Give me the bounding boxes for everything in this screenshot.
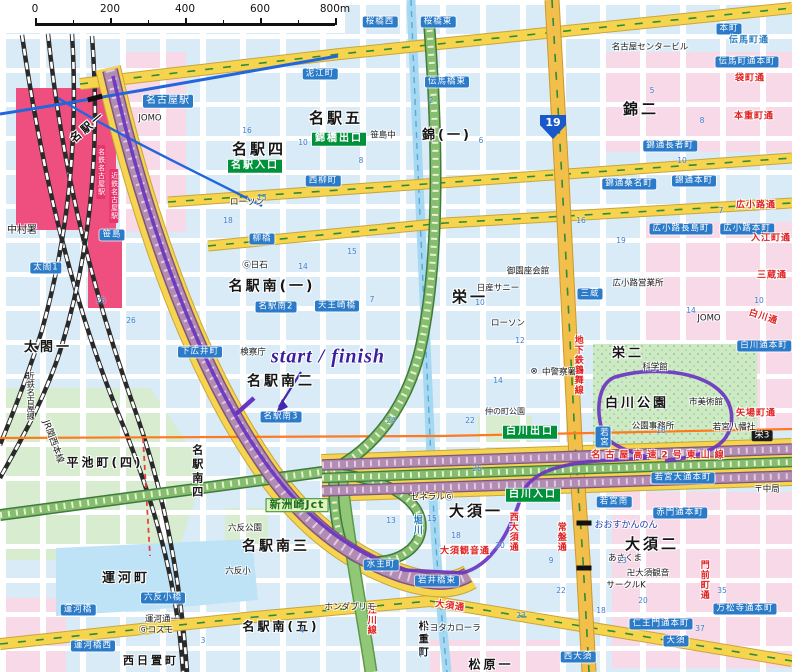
scale-bar-tick [110,18,112,25]
scale-bar-label: 400 [175,3,195,15]
scale-bar-label: 600 [250,3,270,15]
scale-bar-label: 200 [100,3,120,15]
scale-bar-minor-tick [73,20,75,25]
scale-bar: 0200400600800m [0,0,345,33]
scale-bar-label: 0 [32,3,39,15]
scale-bar-tick [260,18,262,25]
map-svg [0,0,792,672]
scale-bar-minor-tick [148,20,150,25]
scale-bar-tick [35,18,37,25]
start-finish-annotation: start / finish [271,347,385,368]
map-canvas[interactable]: 名駅四名駅五錦(一)錦二名駅南(一)名駅南二名駅南三名駅南(五)名駅南四栄一栄二… [0,0,792,672]
scale-bar-tick [185,18,187,25]
scale-bar-minor-tick [223,20,225,25]
scale-bar-minor-tick [298,20,300,25]
scale-bar-label: 800m [320,3,350,15]
scale-bar-tick [335,18,337,25]
